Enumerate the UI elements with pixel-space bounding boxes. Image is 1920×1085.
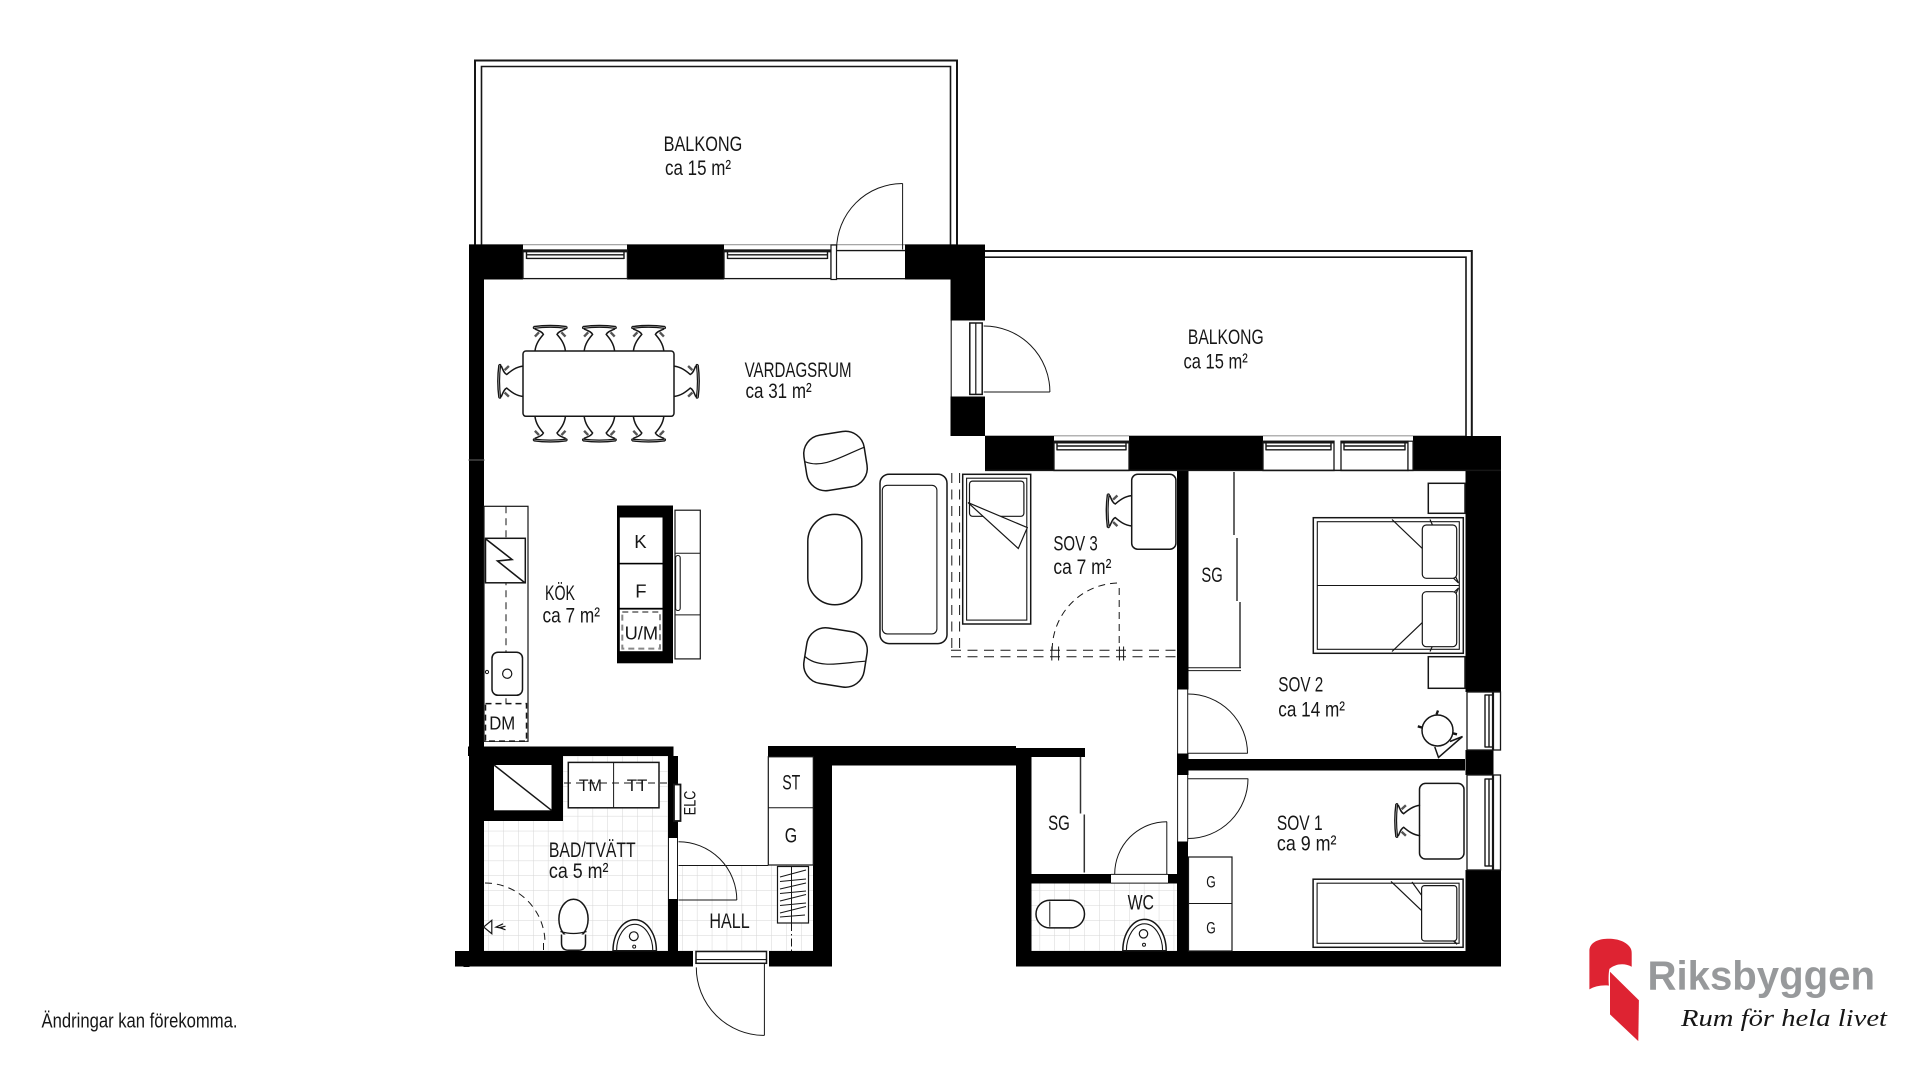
- svg-text:SOV 3: SOV 3: [1053, 531, 1097, 555]
- svg-text:U/M: U/M: [625, 623, 659, 644]
- svg-text:BALKONG: BALKONG: [1188, 325, 1264, 349]
- svg-text:Ändringar kan förekomma.: Ändringar kan förekomma.: [42, 1011, 238, 1033]
- svg-text:Rum för hela livet: Rum för hela livet: [1680, 1006, 1889, 1032]
- svg-text:ca 9 m²: ca 9 m²: [1277, 832, 1337, 856]
- svg-text:G: G: [785, 824, 797, 848]
- svg-text:ca 15 m²: ca 15 m²: [665, 156, 731, 180]
- svg-text:TT: TT: [627, 776, 648, 795]
- svg-text:WC: WC: [1128, 891, 1154, 915]
- svg-text:ca 7 m²: ca 7 m²: [543, 604, 601, 628]
- svg-text:TM: TM: [579, 776, 602, 795]
- svg-text:ST: ST: [782, 771, 800, 795]
- svg-text:Riksbyggen: Riksbyggen: [1648, 953, 1876, 999]
- svg-text:KÖK: KÖK: [545, 581, 575, 605]
- svg-text:ca 7 m²: ca 7 m²: [1053, 555, 1111, 579]
- svg-text:SG: SG: [1201, 563, 1222, 587]
- svg-text:K: K: [634, 531, 647, 552]
- svg-text:ELC: ELC: [681, 791, 700, 816]
- svg-text:HALL: HALL: [709, 909, 749, 933]
- svg-text:G: G: [1206, 873, 1216, 892]
- svg-text:G: G: [1206, 919, 1216, 938]
- svg-text:F: F: [635, 580, 646, 601]
- svg-text:ca 5 m²: ca 5 m²: [549, 859, 609, 883]
- svg-text:ca 15 m²: ca 15 m²: [1184, 350, 1248, 374]
- svg-text:DM: DM: [489, 714, 515, 734]
- svg-text:ca 14 m²: ca 14 m²: [1278, 698, 1345, 722]
- svg-text:SOV 2: SOV 2: [1278, 673, 1323, 697]
- svg-text:ca 31 m²: ca 31 m²: [746, 379, 812, 403]
- svg-text:SG: SG: [1048, 811, 1070, 835]
- svg-text:BALKONG: BALKONG: [664, 132, 743, 156]
